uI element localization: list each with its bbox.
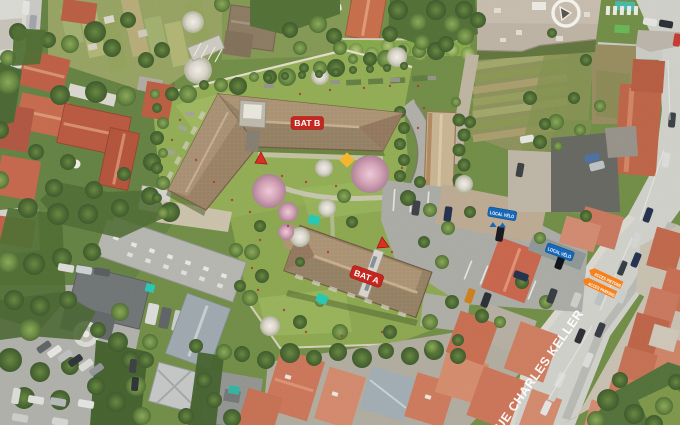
svg-text:BAT B: BAT B [294, 118, 320, 128]
